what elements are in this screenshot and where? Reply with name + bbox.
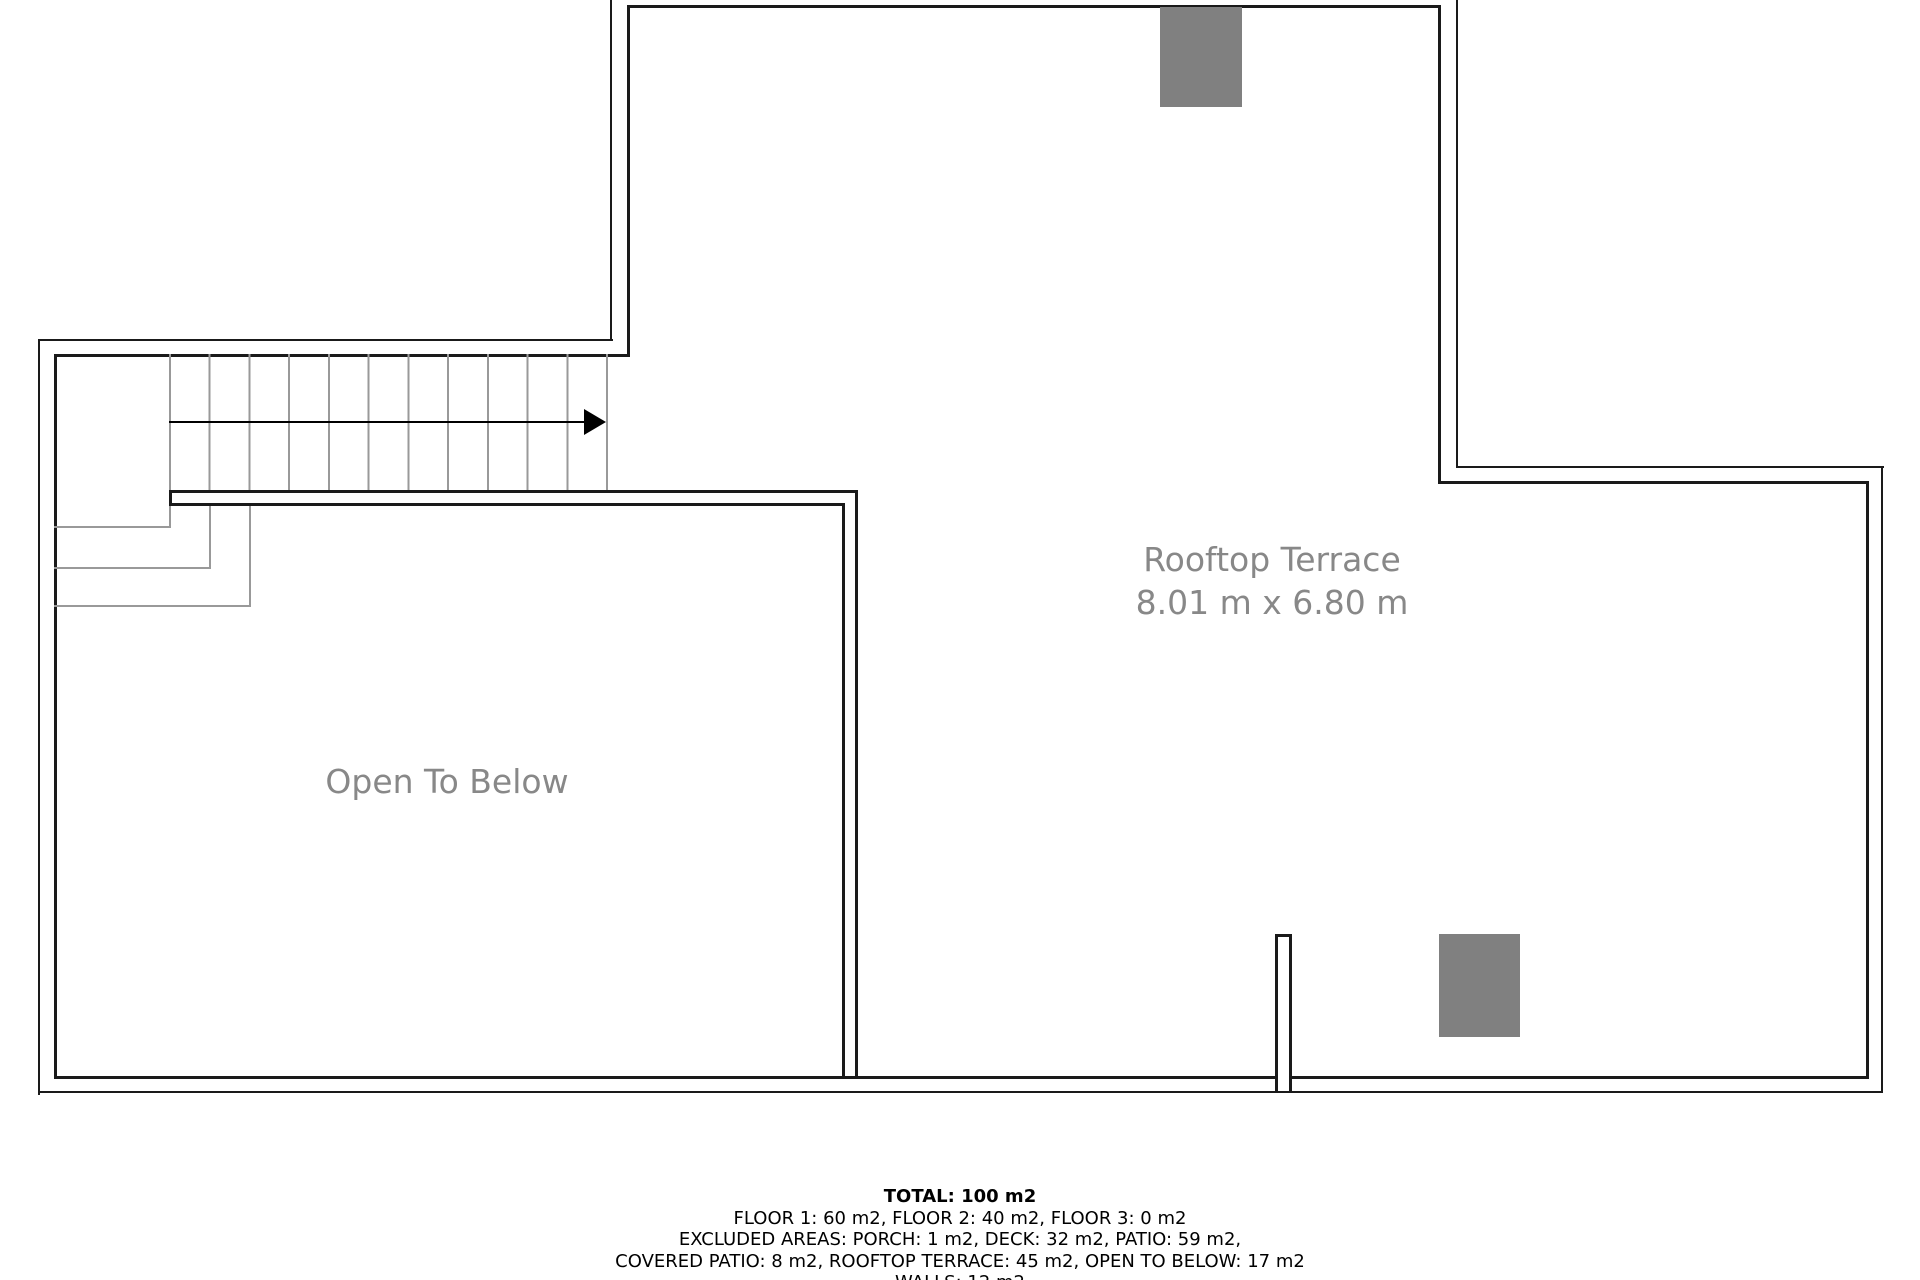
wall-open-below-top-upper xyxy=(169,490,858,493)
gray-fixture-top xyxy=(1160,7,1242,107)
wall-bottom-outer xyxy=(38,1091,1883,1093)
room-label-rooftop-terrace: Rooftop Terrace xyxy=(1012,538,1532,581)
room-label-open-to-below: Open To Below xyxy=(187,760,707,803)
wall-right-section-top-outer xyxy=(1456,466,1884,468)
winder-step-3-edge xyxy=(54,605,249,607)
winder-step-1-riser xyxy=(169,506,171,528)
floor-plan-canvas: Rooftop Terrace 8.01 m x 6.80 m Open To … xyxy=(0,0,1920,1280)
open-to-below-label-group: Open To Below xyxy=(187,760,707,803)
winder-step-2-riser xyxy=(209,506,211,569)
wall-terrace-top-inner xyxy=(627,5,1441,8)
wall-terrace-west-outer xyxy=(610,0,612,341)
wall-open-below-east-outer xyxy=(855,490,858,1076)
winder-step-3-riser xyxy=(249,506,251,607)
summary-total: TOTAL: 100 m2 xyxy=(0,1186,1920,1208)
winder-step-1-edge xyxy=(54,526,169,528)
wall-terrace-east-outer xyxy=(1456,0,1458,468)
wall-right-section-top-inner xyxy=(1438,481,1869,484)
winder-step-2-edge xyxy=(54,567,209,569)
wall-terrace-west-inner xyxy=(627,5,630,357)
arrowhead-icon xyxy=(584,409,606,435)
rooftop-terrace-label-group: Rooftop Terrace 8.01 m x 6.80 m xyxy=(1012,538,1532,624)
wall-open-below-end-cap xyxy=(169,490,172,506)
wall-left-outer xyxy=(38,339,40,1095)
summary-line-covered: COVERED PATIO: 8 m2, ROOFTOP TERRACE: 45… xyxy=(0,1251,1920,1273)
wall-open-below-top-lower xyxy=(169,503,842,506)
wall-right-inner xyxy=(1866,481,1869,1079)
wall-bottom-inner-right xyxy=(1292,1076,1869,1079)
wall-left-section-top-outer xyxy=(38,339,613,341)
wall-right-outer xyxy=(1881,466,1883,1093)
gray-fixture-bottom xyxy=(1439,934,1520,1037)
room-dimensions-rooftop-terrace: 8.01 m x 6.80 m xyxy=(1012,581,1532,624)
wall-terrace-east-inner xyxy=(1438,5,1441,484)
area-summary: TOTAL: 100 m2 FLOOR 1: 60 m2, FLOOR 2: 4… xyxy=(0,1186,1920,1280)
summary-line-floors: FLOOR 1: 60 m2, FLOOR 2: 40 m2, FLOOR 3:… xyxy=(0,1208,1920,1230)
stair-direction-arrow xyxy=(169,421,589,423)
wall-bottom-inner-left xyxy=(54,1076,1275,1079)
wall-left-inner xyxy=(54,354,57,1079)
wall-open-below-east-inner xyxy=(842,503,845,1076)
summary-line-excluded: EXCLUDED AREAS: PORCH: 1 m2, DECK: 32 m2… xyxy=(0,1229,1920,1251)
summary-line-walls: WALLS: 12 m2 xyxy=(0,1272,1920,1280)
wall-stub xyxy=(1275,934,1292,1091)
